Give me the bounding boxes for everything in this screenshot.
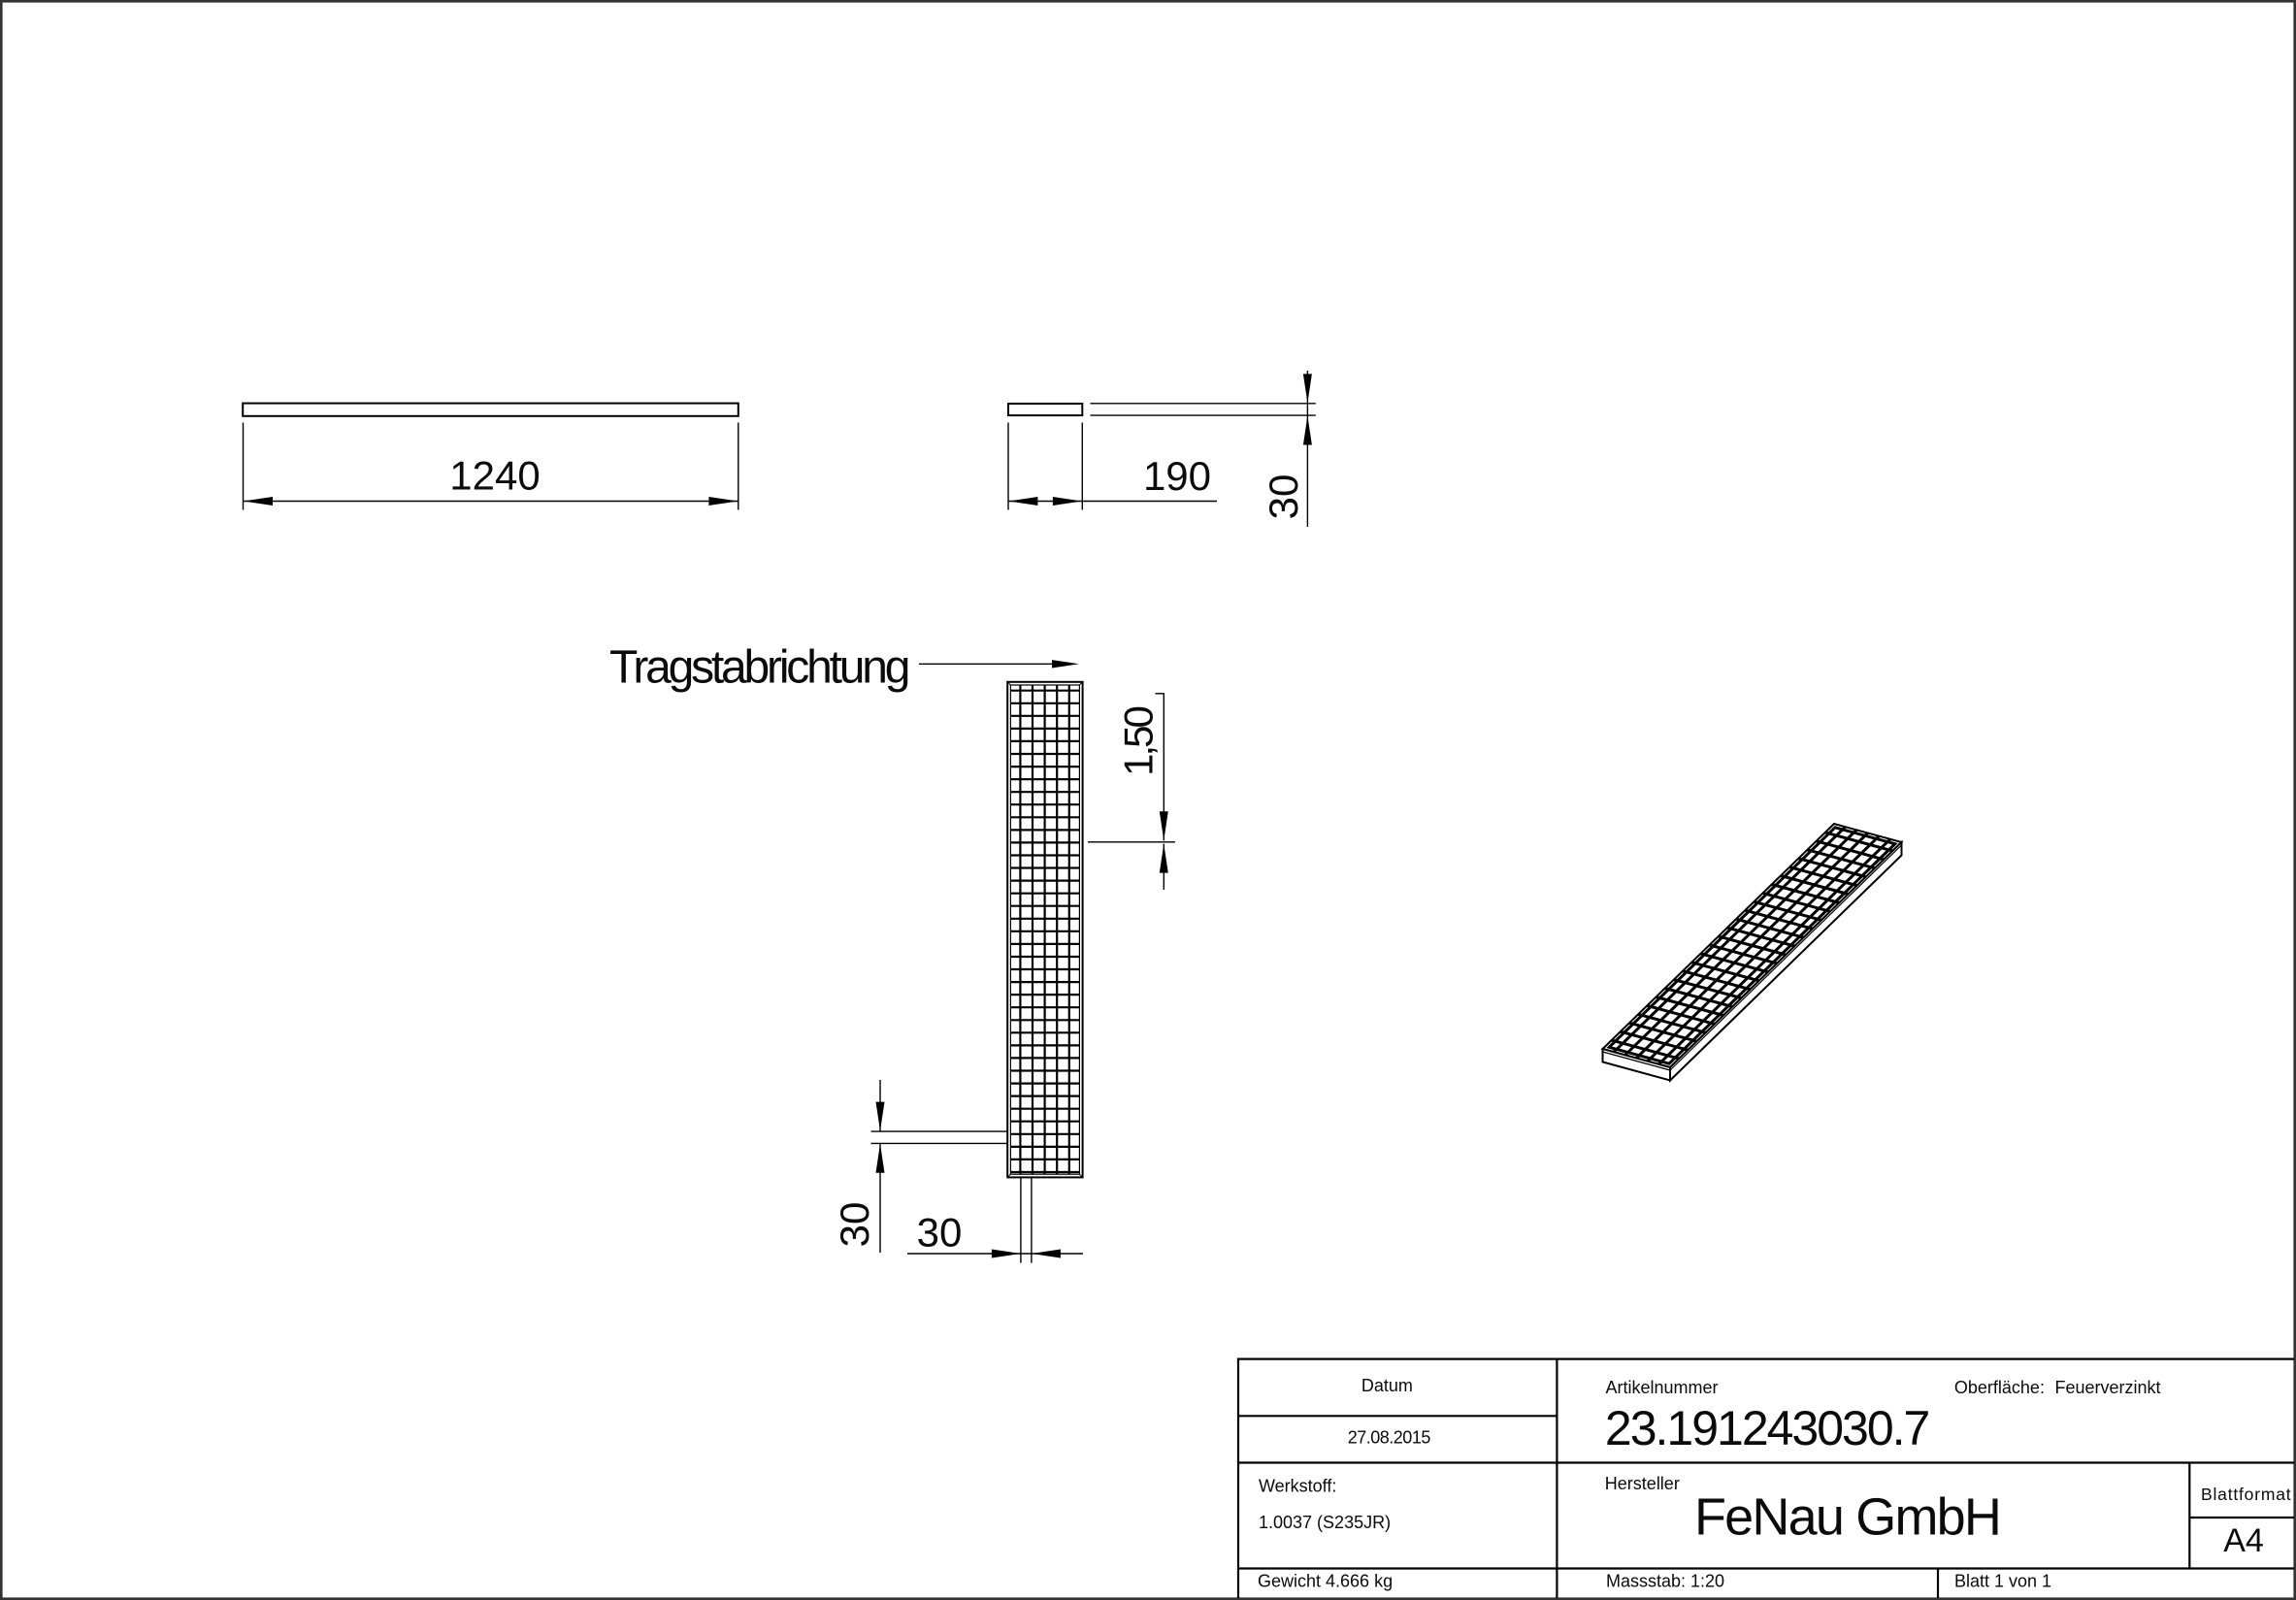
svg-text:Werkstoff:: Werkstoff:	[1259, 1476, 1336, 1495]
svg-text:27.08.2015: 27.08.2015	[1348, 1428, 1431, 1448]
svg-text:A4: A4	[2223, 1522, 2264, 1559]
svg-text:Artikelnummer: Artikelnummer	[1606, 1378, 1719, 1397]
svg-text:Blattformat: Blattformat	[2201, 1485, 2291, 1504]
svg-text:30: 30	[1261, 474, 1306, 520]
svg-text:Feuerverzinkt: Feuerverzinkt	[2055, 1378, 2161, 1397]
svg-text:FeNau GmbH: FeNau GmbH	[1694, 1487, 2000, 1546]
svg-text:Tragstabrichtung: Tragstabrichtung	[609, 642, 908, 694]
svg-text:Gewicht 4.666 kg: Gewicht 4.666 kg	[1258, 1572, 1393, 1591]
svg-text:1.0037 (S235JR): 1.0037 (S235JR)	[1259, 1513, 1391, 1532]
svg-text:23.191243030.7: 23.191243030.7	[1605, 1401, 1929, 1455]
svg-text:Datum: Datum	[1361, 1376, 1413, 1395]
svg-text:Hersteller: Hersteller	[1605, 1474, 1680, 1493]
svg-text:1,50: 1,50	[1116, 706, 1162, 775]
svg-text:Oberfläche:: Oberfläche:	[1954, 1378, 2045, 1397]
svg-text:30: 30	[917, 1210, 963, 1256]
svg-text:Blatt 1 von 1: Blatt 1 von 1	[1954, 1572, 2051, 1591]
svg-text:Massstab: 1:20: Massstab: 1:20	[1606, 1572, 1724, 1591]
svg-text:1240: 1240	[449, 452, 540, 498]
svg-text:30: 30	[832, 1202, 877, 1248]
svg-text:190: 190	[1143, 453, 1211, 499]
